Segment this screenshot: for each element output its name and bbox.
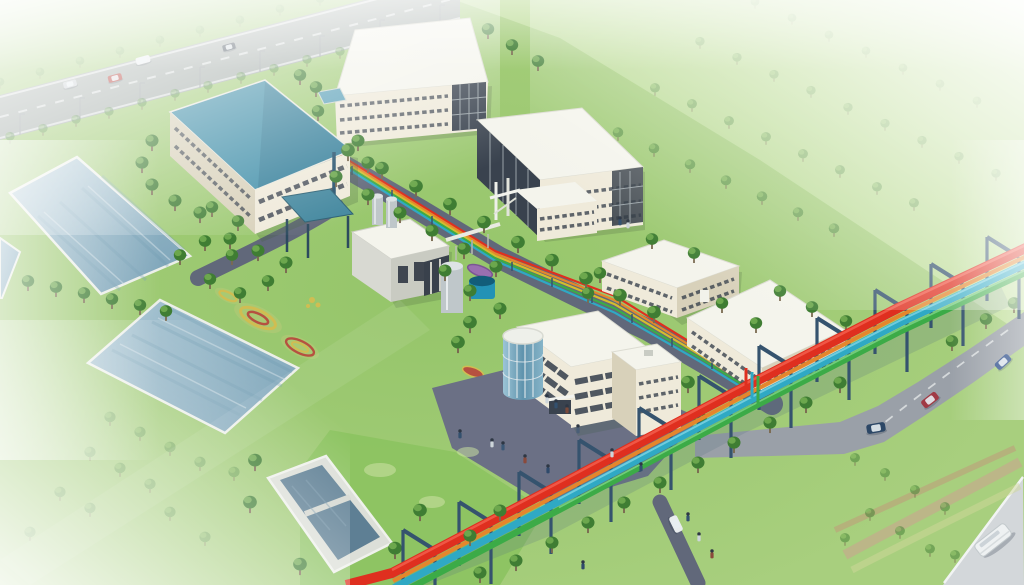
pedestrian: [565, 404, 568, 413]
pedestrian: [545, 394, 548, 403]
pedestrian: [581, 560, 584, 569]
pedestrian: [576, 424, 579, 433]
pedestrian: [501, 441, 504, 450]
haze-top-right: [530, 0, 1024, 310]
rendering-canvas: [0, 0, 1024, 585]
lawn-patch: [364, 463, 396, 477]
pedestrian: [546, 464, 549, 473]
haze-right: [950, 140, 1024, 420]
pedestrian: [490, 438, 493, 447]
haze-left: [0, 140, 160, 460]
campus-aerial-scene: [0, 0, 1024, 585]
pedestrian: [697, 532, 700, 541]
pedestrian: [523, 454, 526, 463]
glass-rotunda: [503, 328, 543, 400]
pedestrian: [710, 549, 713, 558]
opening: [398, 266, 408, 283]
lawn-patch: [457, 447, 479, 457]
rooftop-unit: [644, 350, 653, 356]
pedestrian: [686, 512, 689, 521]
pedestrian: [610, 448, 613, 457]
pedestrian: [639, 462, 642, 471]
rotunda-roof: [503, 328, 543, 344]
pedestrian: [554, 399, 557, 408]
pedestrian: [458, 429, 461, 438]
opening: [414, 262, 424, 281]
